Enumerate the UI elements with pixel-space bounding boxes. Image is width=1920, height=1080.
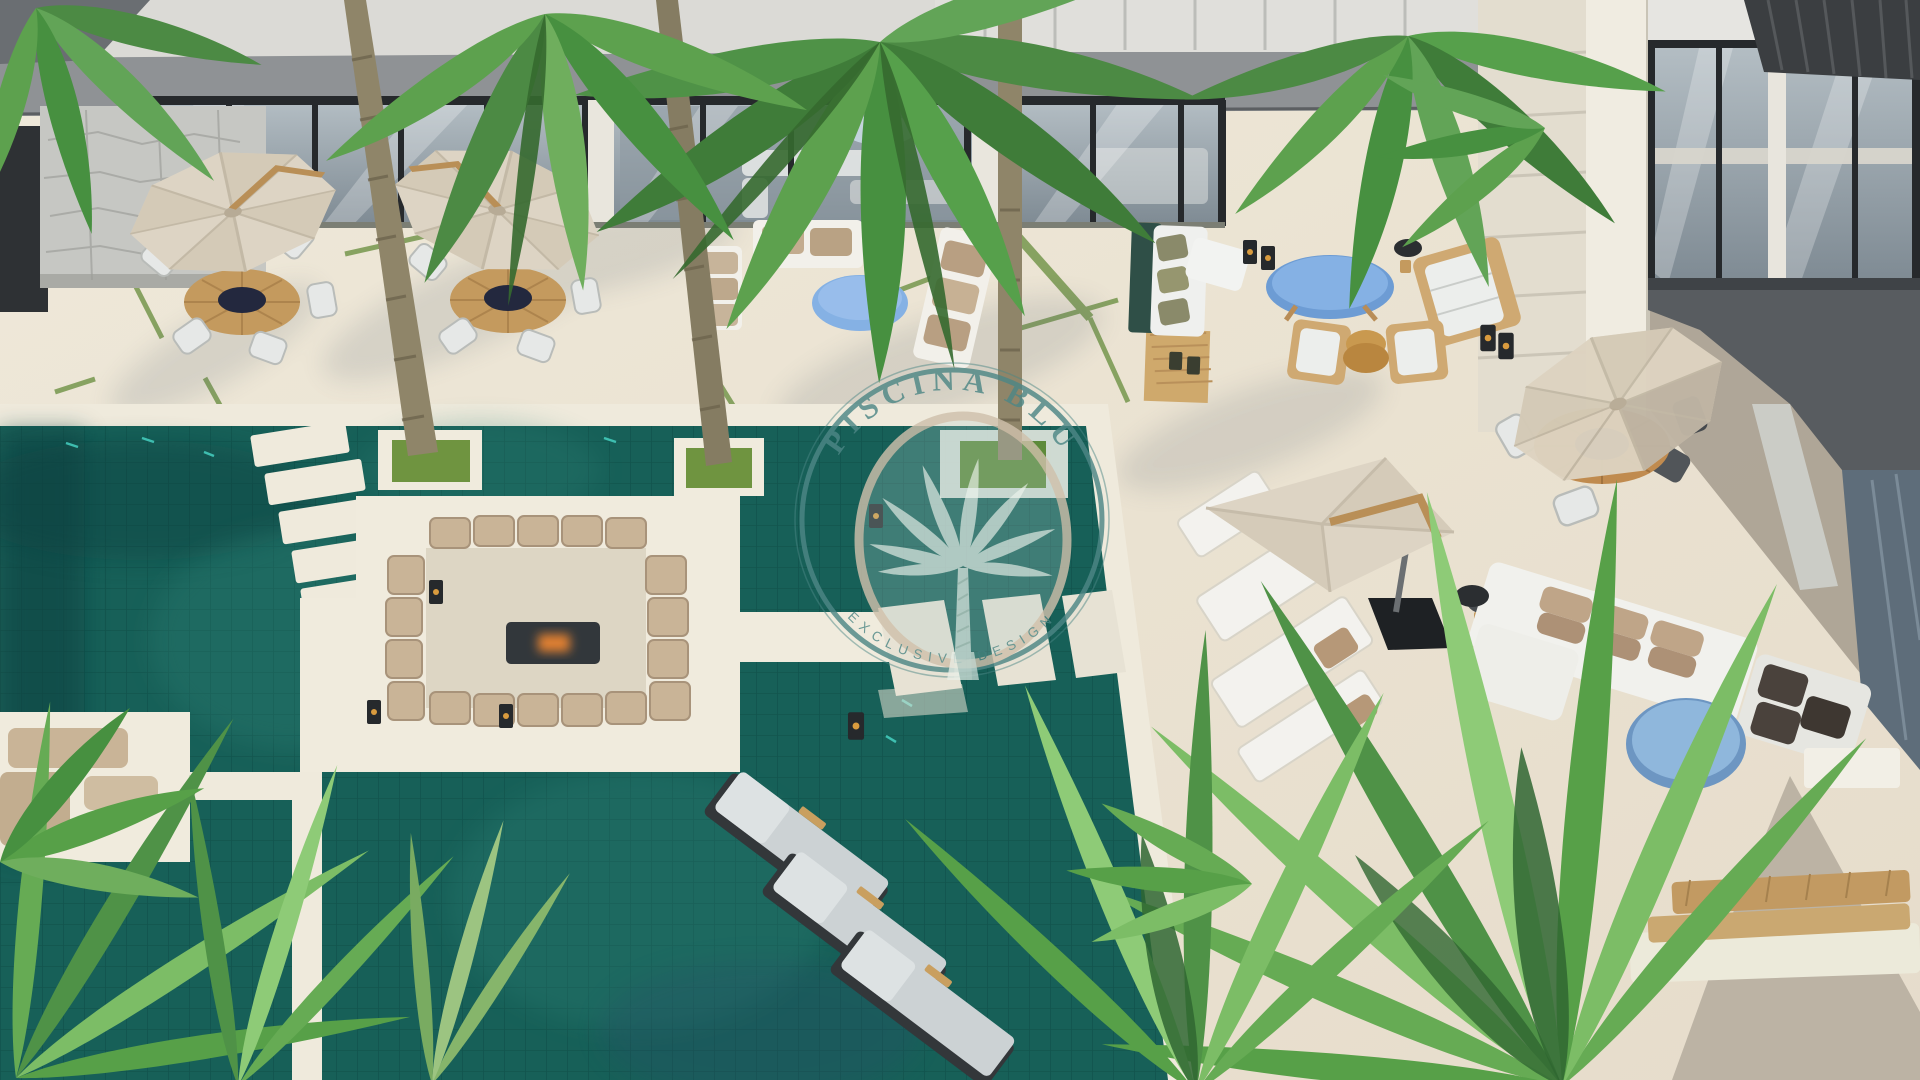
teak-armchair <box>1385 319 1449 385</box>
dining-chair <box>570 277 602 315</box>
lantern-icon <box>848 712 864 740</box>
lantern-icon <box>1480 325 1495 351</box>
teak-armchair <box>1286 318 1352 385</box>
dining-chair <box>306 281 338 319</box>
lantern-icon <box>1243 240 1257 264</box>
blue-oval-table <box>1272 256 1388 310</box>
pool-terrace-render: PISCINA BLU EXCLUSIVE DESIGN <box>0 0 1920 1080</box>
lantern-icon <box>367 700 381 724</box>
fire-table <box>506 622 600 664</box>
white-pier <box>588 100 614 228</box>
scene-canvas: PISCINA BLU EXCLUSIVE DESIGN <box>0 0 1920 1080</box>
white-column <box>1768 44 1786 284</box>
lantern-icon <box>499 704 513 728</box>
lantern-icon <box>1498 333 1513 359</box>
lantern-icon <box>1261 246 1275 270</box>
lantern-icon <box>429 580 443 604</box>
